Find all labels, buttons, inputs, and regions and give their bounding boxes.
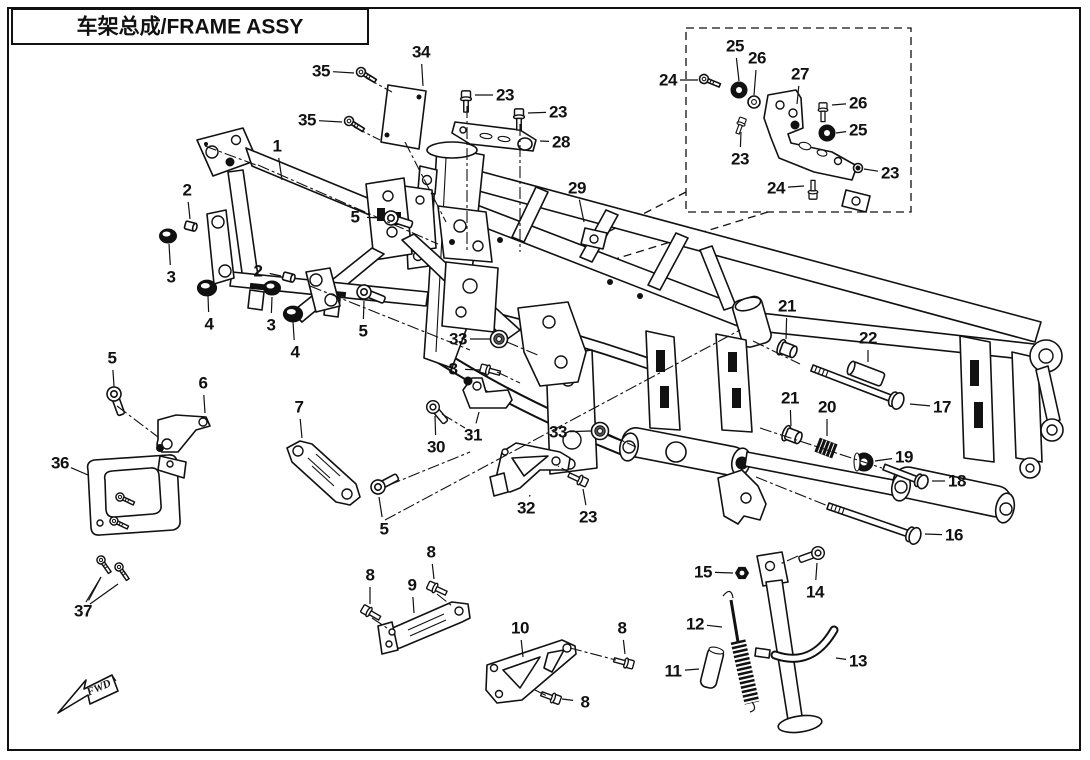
frame-assy-diagram: 3535342323282924252627262523232412342345…	[0, 0, 1090, 760]
svg-text:21: 21	[778, 297, 796, 316]
part-20-bushing	[815, 438, 837, 458]
svg-text:12: 12	[686, 615, 704, 634]
callout-26: 26	[748, 49, 766, 96]
callout-13: 13	[836, 652, 867, 671]
part-34-plate	[381, 85, 426, 149]
part-10-bracket	[486, 640, 576, 703]
callout-9: 9	[408, 576, 417, 614]
callout-25: 25	[726, 37, 744, 82]
svg-text:5: 5	[108, 349, 117, 368]
diagram-page: 3535342323282924252627262523232412342345…	[0, 0, 1090, 760]
svg-text:4: 4	[205, 315, 215, 334]
callout-15: 15	[694, 563, 733, 582]
part-37-screw	[113, 561, 131, 581]
svg-text:7: 7	[295, 398, 304, 417]
svg-text:35: 35	[298, 111, 316, 130]
callout-31: 31	[464, 412, 482, 445]
callout-32: 32	[517, 495, 535, 518]
callout-8: 8	[562, 693, 590, 712]
part-3-cap	[264, 281, 281, 295]
svg-text:15: 15	[694, 563, 712, 582]
callout-16: 16	[925, 526, 963, 545]
callout-33: 33	[449, 330, 490, 349]
part-37-screw	[95, 554, 113, 574]
svg-text:8: 8	[427, 543, 436, 562]
svg-text:17: 17	[933, 398, 951, 417]
svg-text:23: 23	[579, 508, 597, 527]
svg-text:27: 27	[791, 65, 809, 84]
svg-text:9: 9	[408, 576, 417, 595]
svg-text:8: 8	[366, 566, 375, 585]
part-11-roller	[699, 646, 724, 690]
part-27-bracket	[764, 90, 857, 180]
callout-4: 4	[291, 322, 301, 362]
callout-25: 25	[836, 121, 867, 140]
callout-34: 34	[412, 43, 431, 87]
svg-text:26: 26	[748, 49, 766, 68]
part-8-bolt	[426, 580, 448, 598]
svg-text:25: 25	[849, 121, 867, 140]
part-4-cap	[197, 280, 216, 296]
svg-text:6: 6	[199, 374, 208, 393]
callout-24: 24	[767, 179, 804, 198]
callout-24: 24	[659, 71, 698, 90]
part-16-bolt	[825, 498, 923, 546]
callout-6: 6	[199, 374, 208, 414]
svg-text:8: 8	[618, 619, 627, 638]
callout-23: 23	[528, 103, 567, 122]
callout-35: 35	[312, 62, 354, 81]
part-8-bolt	[360, 604, 382, 623]
svg-text:34: 34	[412, 43, 431, 62]
part-33-damper	[491, 331, 508, 348]
part-front-bracket-assembly	[197, 128, 586, 386]
callout-23: 23	[475, 86, 514, 105]
svg-text:4: 4	[291, 343, 301, 362]
svg-text:10: 10	[511, 619, 529, 638]
callout-11: 11	[665, 662, 699, 681]
part-25-grommet	[731, 82, 747, 98]
svg-text:28: 28	[552, 133, 570, 152]
part-26-washer	[748, 96, 760, 108]
callout-14: 14	[806, 563, 825, 602]
svg-text:3: 3	[167, 268, 176, 287]
title-block: 车架总成/FRAME ASSY	[12, 9, 368, 44]
part-23-bolt	[734, 117, 748, 135]
part-25-grommet	[819, 125, 835, 141]
callout-23: 23	[864, 164, 899, 183]
part-9-bracket	[378, 602, 470, 654]
part-2-spacer	[184, 221, 198, 232]
svg-text:23: 23	[496, 86, 514, 105]
part-8-bolt	[540, 689, 562, 705]
svg-text:35: 35	[312, 62, 330, 81]
svg-text:3: 3	[267, 316, 276, 335]
svg-text:13: 13	[849, 652, 867, 671]
svg-text:8: 8	[581, 693, 590, 712]
svg-text:21: 21	[781, 389, 799, 408]
part-12-spring	[723, 591, 755, 712]
part-23-nut	[854, 164, 863, 173]
part-7-bracket	[287, 441, 360, 505]
part-8-bolt	[613, 655, 635, 670]
svg-text:23: 23	[549, 103, 567, 122]
callout-23: 23	[731, 132, 749, 169]
part-32-bracket	[490, 443, 570, 496]
callout-26: 26	[832, 94, 867, 113]
svg-text:1: 1	[273, 137, 282, 156]
part-15-nut	[736, 567, 749, 578]
callout-28: 28	[540, 133, 570, 152]
svg-text:23: 23	[881, 164, 899, 183]
svg-text:2: 2	[254, 262, 263, 281]
svg-text:37: 37	[74, 602, 92, 621]
svg-text:16: 16	[945, 526, 963, 545]
part-4-cap	[283, 306, 302, 322]
svg-text:14: 14	[806, 583, 825, 602]
callout-5: 5	[359, 301, 368, 341]
svg-text:32: 32	[517, 499, 535, 518]
callout-21: 21	[781, 389, 799, 427]
callout-36: 36	[51, 454, 88, 476]
svg-text:33: 33	[549, 423, 567, 442]
callout-20: 20	[818, 398, 836, 437]
part-5-bolt	[369, 470, 401, 496]
callout-23: 23	[579, 489, 597, 527]
part-36-bracket	[88, 455, 186, 535]
callout-19: 19	[875, 448, 913, 467]
callout-35: 35	[298, 111, 342, 130]
part-23-bolt	[514, 109, 525, 130]
callout-8: 8	[366, 566, 375, 605]
callout-7: 7	[295, 398, 304, 439]
callout-17: 17	[910, 398, 951, 417]
callout-5: 5	[379, 497, 389, 539]
fwd-arrow: FWD	[58, 675, 118, 713]
svg-text:18: 18	[948, 472, 966, 491]
svg-text:5: 5	[351, 208, 360, 227]
svg-text:25: 25	[726, 37, 744, 56]
svg-text:24: 24	[767, 179, 786, 198]
part-33-damper	[592, 423, 609, 440]
part-13-side-stand	[755, 552, 834, 735]
callout-3: 3	[167, 244, 176, 287]
part-23-bolt	[461, 91, 472, 112]
callout-22: 22	[859, 329, 877, 363]
svg-text:30: 30	[427, 438, 445, 457]
svg-text:26: 26	[849, 94, 867, 113]
svg-text:22: 22	[859, 329, 877, 348]
svg-text:24: 24	[659, 71, 678, 90]
part-3-cap	[160, 229, 177, 243]
svg-text:5: 5	[380, 520, 389, 539]
callout-8: 8	[618, 619, 627, 655]
svg-text:33: 33	[449, 330, 467, 349]
part-24-bolt	[808, 180, 818, 199]
svg-text:23: 23	[731, 150, 749, 169]
part-30-bolt	[424, 398, 450, 426]
svg-text:5: 5	[359, 322, 368, 341]
part-24-screw	[698, 73, 721, 89]
part-6-bracket	[157, 415, 211, 452]
callout-3: 3	[267, 297, 276, 335]
svg-text:31: 31	[464, 426, 482, 445]
callout-2: 2	[183, 181, 192, 220]
svg-text:2: 2	[183, 181, 192, 200]
callout-4: 4	[205, 296, 215, 334]
callout-5: 5	[108, 349, 117, 387]
page-title: 车架总成/FRAME ASSY	[77, 15, 304, 39]
part-14-bolt	[797, 545, 826, 566]
svg-text:8: 8	[449, 360, 458, 379]
callout-12: 12	[686, 615, 722, 634]
svg-text:19: 19	[895, 448, 913, 467]
svg-text:20: 20	[818, 398, 836, 417]
part-26-bolt	[818, 103, 828, 122]
svg-text:36: 36	[51, 454, 69, 473]
svg-text:29: 29	[568, 179, 586, 198]
svg-text:11: 11	[665, 662, 682, 681]
callout-8: 8	[427, 543, 436, 580]
